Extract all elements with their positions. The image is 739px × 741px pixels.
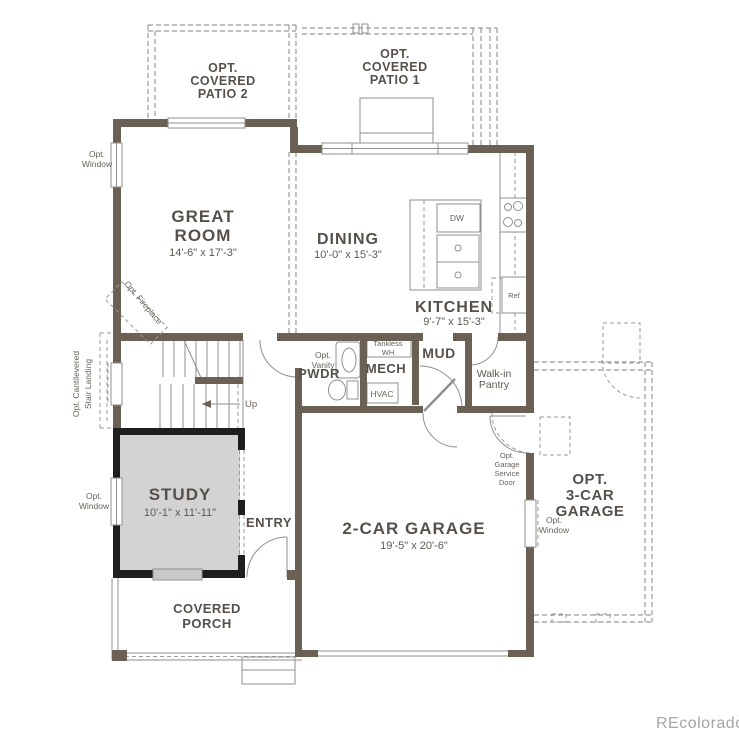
patio2-label-2: COVERED — [190, 74, 255, 88]
dining-label: DINING — [317, 231, 379, 248]
opt-window-label-garage-1: Opt. — [546, 515, 562, 525]
dining-patio-door — [322, 143, 468, 154]
garage-label: 2-CAR GARAGE — [342, 519, 485, 538]
ref-label: Ref — [508, 291, 521, 300]
study-left-window — [111, 478, 122, 525]
kitchen-island — [410, 200, 481, 290]
mud-door-leaf — [424, 379, 455, 411]
great-room-top-window — [168, 118, 245, 128]
patio-fireplace-box — [360, 98, 433, 146]
patio2-label-1: OPT. — [208, 61, 238, 75]
mud-label: MUD — [422, 345, 455, 361]
opt-fireplace-label: Opt. Fireplace — [122, 279, 164, 327]
toilet — [329, 380, 359, 400]
opt-cantilevered-label-1: Opt. Cantilevered — [71, 351, 81, 417]
service-door-label-3: Service — [494, 469, 519, 478]
great-room-label-2: ROOM — [175, 226, 232, 245]
entry-label: ENTRY — [246, 515, 292, 530]
porch-label-1: COVERED — [173, 601, 241, 616]
opt-garage-label-2: 3-CAR — [566, 487, 614, 504]
porch-post — [112, 650, 127, 661]
opt-vanity-label-1: Opt. — [315, 350, 331, 360]
service-door-label-2: Garage — [494, 460, 519, 469]
patio1-label-3: PATIO 1 — [370, 73, 420, 87]
pantry-door-swing — [470, 337, 498, 365]
tankless-label-1: Tankless — [373, 339, 402, 348]
mech-label: MECH — [366, 361, 406, 376]
great-room-dims: 14'-6" x 17'-3" — [169, 247, 237, 259]
kitchen-label: KITCHEN — [415, 299, 493, 316]
study-label: STUDY — [149, 485, 212, 504]
room-divider-dashed — [289, 152, 296, 333]
opt-window-label-gr-2: Window — [82, 159, 113, 169]
great-room-label-1: GREAT — [171, 207, 234, 226]
opt-window-label-study-1: Opt. — [86, 491, 102, 501]
porch-steps — [242, 657, 295, 684]
mud-door-swing — [420, 366, 462, 408]
tankless-label-2: WH — [382, 348, 395, 357]
up-label: Up — [245, 399, 257, 410]
patio1-label-1: OPT. — [380, 47, 410, 61]
study-dims: 10'-1" x 11'-11" — [144, 507, 216, 519]
opt-service-door-swing — [602, 360, 640, 398]
patio-2-outline — [148, 24, 368, 119]
patio1-label-2: COVERED — [362, 60, 427, 74]
great-room-left-window — [111, 143, 122, 187]
opt-garage-label-1: OPT. — [572, 471, 607, 488]
watermark: REcolorado — [656, 715, 739, 732]
service-door-swing — [490, 416, 527, 453]
service-door-label-4: Door — [499, 478, 516, 487]
service-door-swing-alt — [492, 413, 532, 453]
service-door-label-1: Opt. — [500, 451, 514, 460]
opt-window-label-study-2: Window — [79, 501, 110, 511]
garage-entry-door-swing — [423, 413, 457, 447]
floor-plan-svg: OPT. COVERED PATIO 2 OPT. COVERED PATIO … — [0, 0, 739, 741]
opt-service-door-leaf — [603, 323, 640, 363]
opt-window-label-garage-2: Window — [539, 525, 570, 535]
patio2-label-3: PATIO 2 — [198, 87, 248, 101]
kitchen-dims: 9'-7" x 15'-3" — [423, 316, 485, 328]
sink-basin-1 — [437, 235, 479, 262]
hvac-label: HVAC — [371, 389, 394, 399]
garage-door-opening — [318, 651, 508, 656]
front-door-swing — [247, 537, 287, 577]
opt-garage-label-3: GARAGE — [556, 503, 625, 520]
porch-label-2: PORCH — [182, 616, 231, 631]
windows — [108, 118, 538, 656]
powder-door-swing — [260, 340, 297, 377]
cooktop — [500, 198, 527, 232]
opt-window-label-gr-1: Opt. — [89, 149, 105, 159]
garage-right-window — [525, 500, 538, 547]
pantry-label-2: Pantry — [479, 379, 510, 391]
stair-landing-window — [108, 363, 122, 405]
floor-plan: OPT. COVERED PATIO 2 OPT. COVERED PATIO … — [0, 0, 739, 741]
study-bottom-window — [153, 569, 202, 580]
dw-label: DW — [450, 213, 464, 223]
opt-cantilevered-label-2: Stair Landing — [83, 359, 93, 409]
dining-dims: 10'-0" x 15'-3" — [314, 249, 382, 261]
garage-dims: 19'-5" x 20'-6" — [380, 540, 448, 552]
sink-basin-2 — [437, 262, 479, 288]
opt-vanity-label-2: Vanity — [312, 360, 336, 370]
